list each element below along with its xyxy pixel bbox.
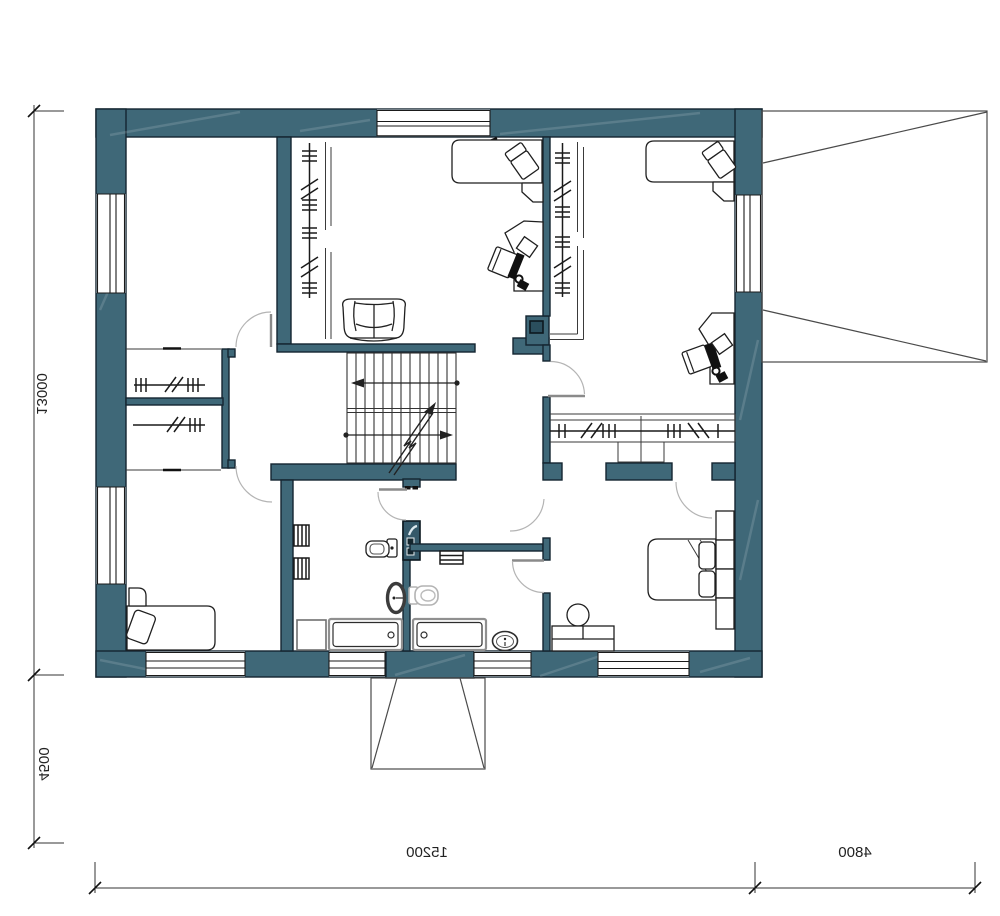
svg-text:15200: 15200 <box>406 844 448 861</box>
svg-text:4500: 4500 <box>35 747 52 780</box>
svg-text:4800: 4800 <box>838 844 871 861</box>
svg-text:13000: 13000 <box>33 373 50 415</box>
